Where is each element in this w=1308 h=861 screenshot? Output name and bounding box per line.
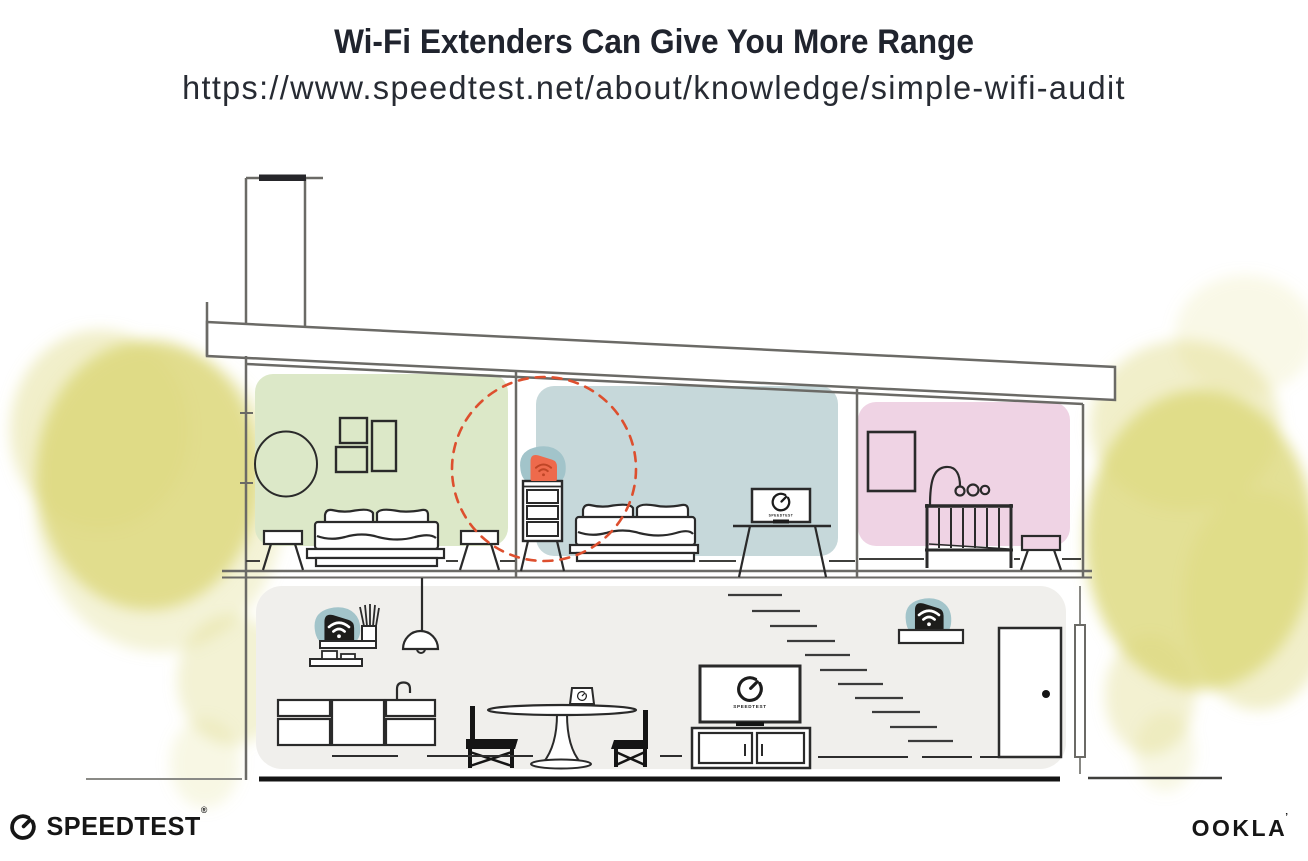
tv-brand-text: SPEEDTEST (733, 704, 767, 709)
speedtest-gauge-icon (8, 812, 38, 842)
tv-brand-text: SPEEDTEST (769, 514, 794, 518)
nightstand (460, 531, 499, 570)
tv-cabinet (692, 728, 810, 768)
infographic-page: Wi-Fi Extenders Can Give You More Range … (0, 0, 1308, 861)
dresser (521, 481, 564, 571)
chimney-cap (259, 175, 306, 182)
watercolor-tree-right (1085, 275, 1308, 792)
ookla-logo: OOKLA’ (1192, 815, 1290, 842)
speedtest-wordmark: SPEEDTEST® (46, 811, 207, 842)
house-illustration: SPEEDTEST (0, 0, 1308, 861)
tv-screen (700, 666, 800, 722)
wall-shelf (310, 659, 362, 666)
living-room-tv: SPEEDTEST (700, 666, 800, 726)
wall-shelf (320, 641, 376, 648)
door (999, 628, 1061, 757)
chimney (246, 175, 323, 334)
ookla-trademark: ’ (1285, 812, 1288, 823)
bed (570, 505, 698, 561)
stool (1021, 536, 1061, 570)
hall-shelf (899, 630, 963, 643)
door-knob (1042, 690, 1050, 698)
right-pillar (1075, 625, 1085, 757)
registered-mark: ® (201, 805, 208, 815)
footer: SPEEDTEST® OOKLA’ (0, 809, 1308, 853)
laptop (570, 688, 594, 704)
speedtest-logo: SPEEDTEST® (8, 811, 210, 842)
